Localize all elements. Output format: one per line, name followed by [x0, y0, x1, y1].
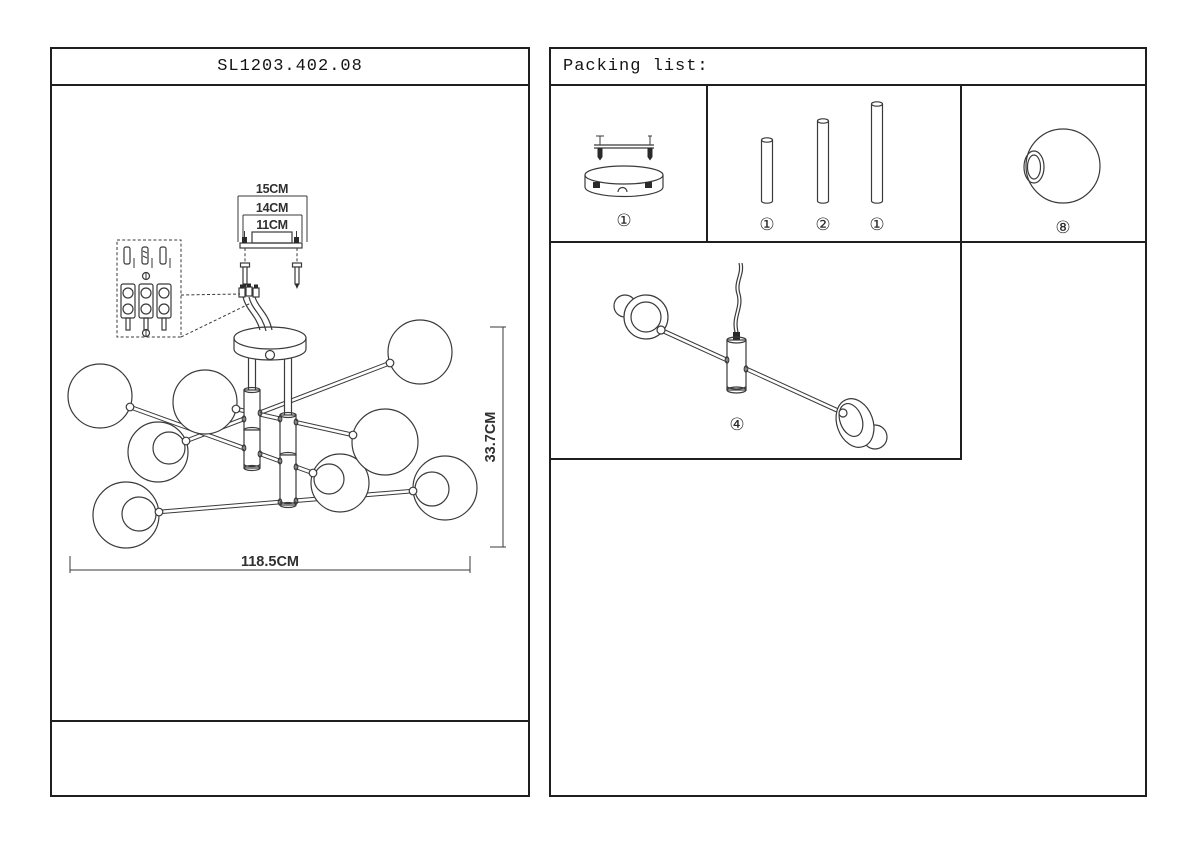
packing-list-title: Packing list: — [551, 49, 1145, 86]
cell-globe — [962, 86, 1145, 241]
cell-arm-assembly — [551, 243, 962, 460]
footer-divider — [52, 720, 528, 722]
packing-list-panel: Packing list: — [549, 47, 1147, 797]
instruction-sheet: SL1203.402.08 Packing list: 15CM 14CM 11… — [0, 0, 1200, 848]
cell-rods — [708, 86, 962, 241]
cell-canopy — [551, 86, 708, 241]
model-number-title: SL1203.402.08 — [52, 49, 528, 86]
product-drawing-panel: SL1203.402.08 — [50, 47, 530, 797]
packing-list-row-parts — [551, 86, 1145, 243]
